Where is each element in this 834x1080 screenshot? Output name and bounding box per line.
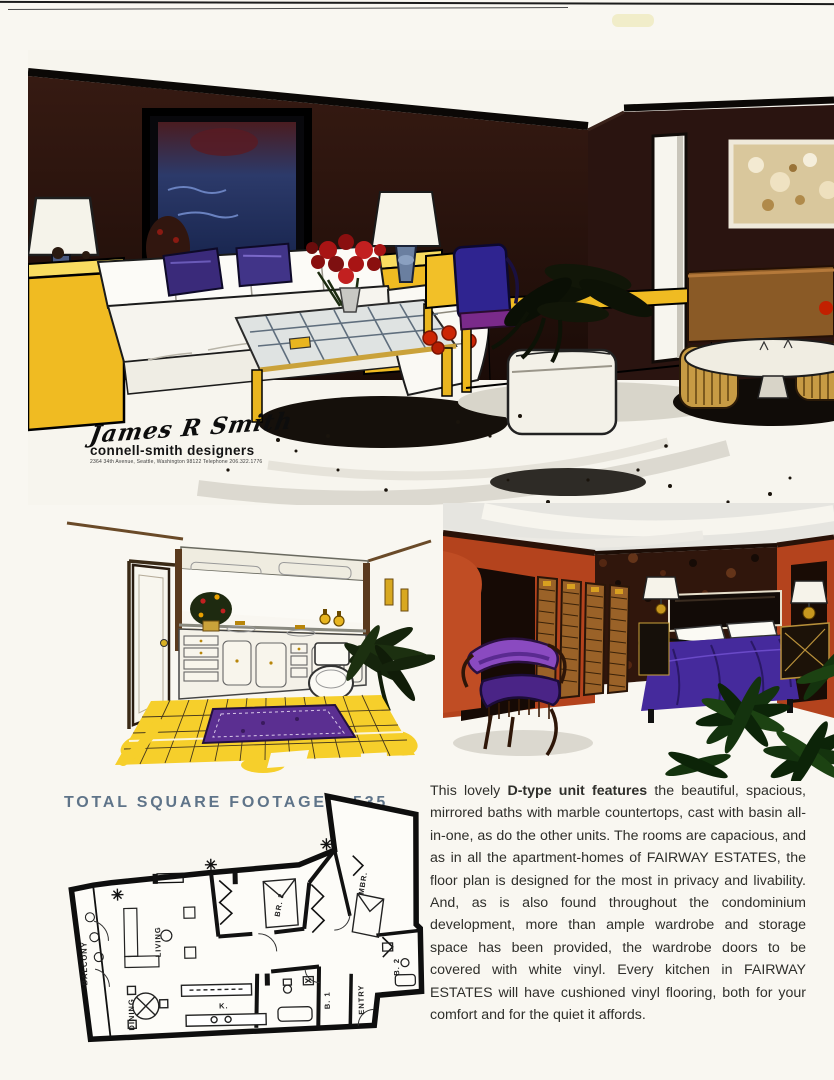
bathroom-rendering <box>63 503 435 775</box>
bedroom-rendering <box>443 503 834 781</box>
description-body: the beautiful, spacious, mirrored baths … <box>430 783 806 1023</box>
scan-edge-line-2 <box>8 7 568 10</box>
label-b2: B. 2 <box>392 958 401 976</box>
brochure-page: James R Smith connell-smith designers 23… <box>0 0 834 1080</box>
label-living: LIVING <box>153 926 163 957</box>
scan-smudge <box>612 14 654 27</box>
scan-edge-line <box>0 1 834 5</box>
wall-sconces <box>385 579 408 611</box>
description-bold: D-type unit features <box>507 783 647 799</box>
floor-plan: BALCONY LIVING DINING K. BR. 2 MBR. ENTR… <box>60 788 430 1046</box>
toilet <box>309 643 353 700</box>
description-lead: This lovely <box>430 783 507 799</box>
label-kitchen: K. <box>219 1001 229 1010</box>
unit-description: This lovely D-type unit features the bea… <box>430 780 806 1026</box>
designer-signature-block: James R Smith connell-smith designers 23… <box>90 414 310 465</box>
label-balcony: BALCONY <box>79 941 89 985</box>
dining-set <box>673 266 834 426</box>
door-opening <box>653 134 686 362</box>
purple-rug <box>203 705 355 743</box>
label-entry: ENTRY <box>356 984 366 1014</box>
designer-address: 2364 34th Avenue, Seattle, Washington 98… <box>90 459 310 465</box>
plan-outer-walls <box>70 794 423 1039</box>
floral-artwork <box>731 142 834 226</box>
label-dining: DINING <box>127 998 137 1030</box>
label-b1: B. 1 <box>323 991 332 1009</box>
